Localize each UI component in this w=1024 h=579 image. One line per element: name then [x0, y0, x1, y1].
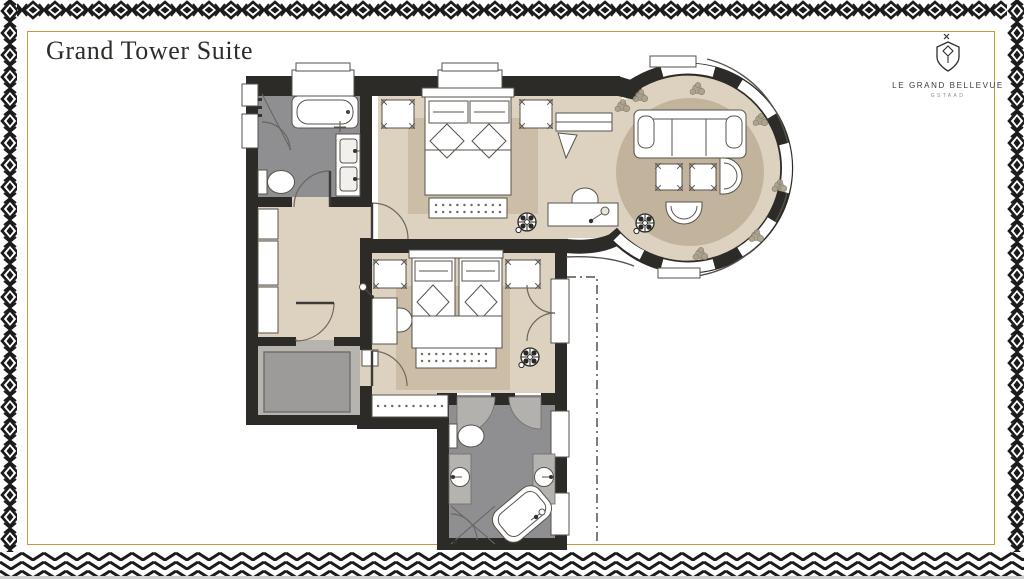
- foot-bench: [416, 348, 496, 368]
- nightstand: [506, 260, 540, 288]
- headboard: [409, 250, 503, 258]
- door-gap-bath1: [292, 197, 330, 207]
- window-sill: [650, 56, 696, 67]
- headboard: [422, 88, 514, 97]
- window: [292, 70, 354, 96]
- window-sill: [296, 63, 350, 71]
- wardrobe: [258, 287, 278, 333]
- toilet: [268, 171, 295, 194]
- window: [242, 84, 258, 106]
- page: { "header": { "title": "Grand Tower Suit…: [0, 0, 1024, 579]
- door-gap-bed1: [360, 202, 372, 238]
- duvet: [412, 316, 502, 348]
- french-window: [551, 279, 569, 343]
- wardrobe: [258, 209, 278, 239]
- floor-plan: [0, 0, 1024, 579]
- toilet: [458, 425, 484, 447]
- wardrobe: [258, 241, 278, 285]
- window-sill: [442, 63, 498, 71]
- desk: [372, 298, 397, 344]
- sofa-armrest: [726, 116, 742, 148]
- sofa-armrest: [638, 116, 654, 148]
- foot-bench: [429, 198, 507, 218]
- window-sill: [658, 268, 700, 278]
- side-table: [362, 350, 378, 366]
- window: [242, 114, 258, 148]
- toilet-tank: [258, 170, 267, 194]
- low-wardrobe: [372, 395, 448, 417]
- window: [551, 411, 569, 457]
- toilet-tank: [449, 424, 457, 448]
- void-area: [264, 352, 350, 412]
- dashed-boundary-line: [567, 277, 597, 543]
